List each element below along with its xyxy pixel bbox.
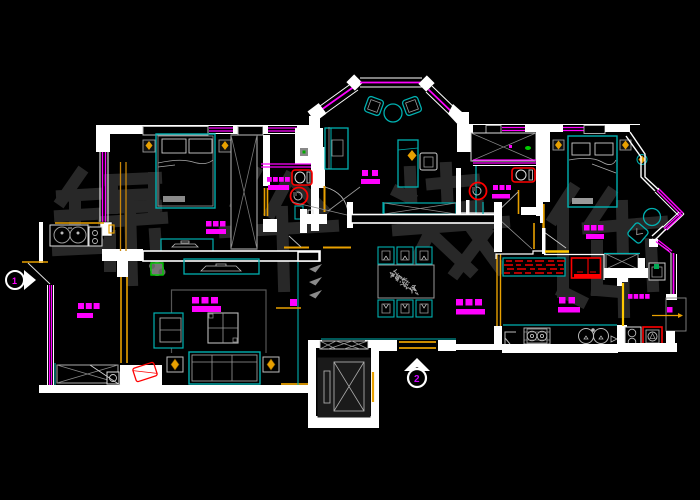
svg-text:1: 1 [12, 276, 17, 286]
svg-text:2: 2 [414, 374, 420, 385]
